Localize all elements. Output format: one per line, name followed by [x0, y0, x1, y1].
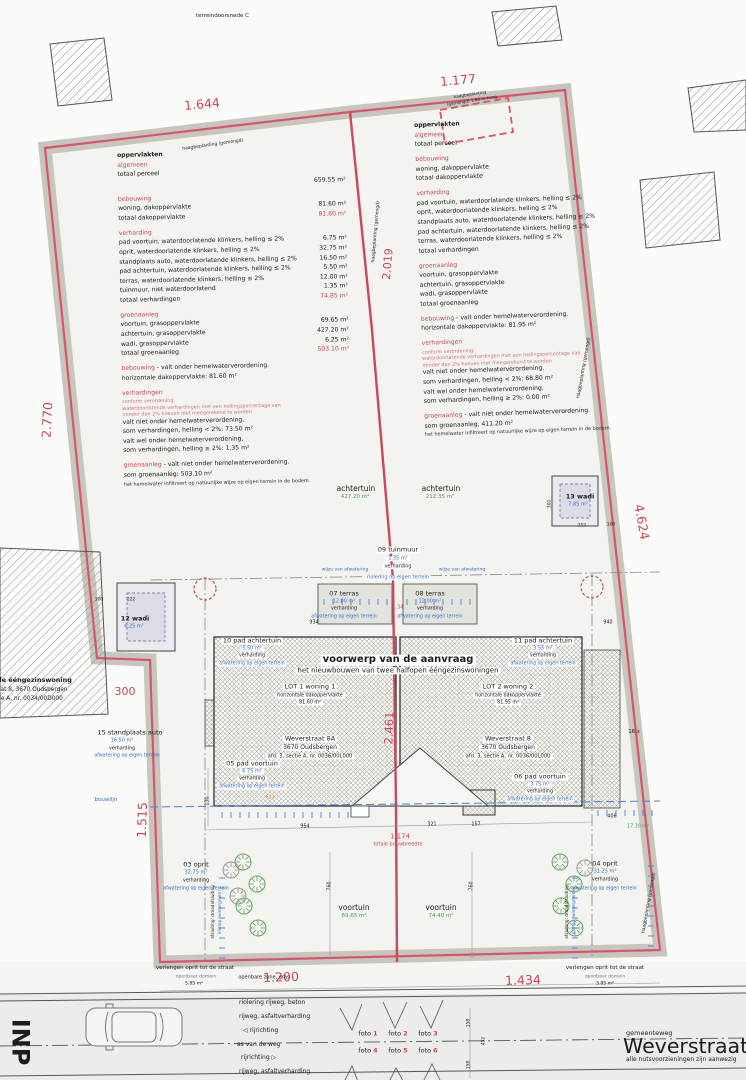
surface-note: verharding [237, 776, 267, 781]
road-axis-note: as van de weg [237, 1042, 280, 1048]
row-value: 81.60 m² [314, 201, 346, 208]
car-icon [86, 1004, 182, 1050]
feature-08-terras: 08 terras [415, 591, 445, 598]
feature-13-wadi: 13 wadi [566, 494, 595, 501]
label-text: afsluiting: draadafsluiting [564, 885, 569, 939]
label-text: totale bouwbreedte [373, 841, 422, 847]
dim-small: 934 [309, 620, 318, 625]
row-label: achtertuin, grasoppervlakte [121, 330, 206, 338]
lot2-title: LOT 2 woning 2 [481, 684, 535, 691]
dim-small: 612 [265, 795, 274, 800]
label-text: 32.75 m² [185, 869, 208, 875]
dim-300: 300 [115, 686, 136, 698]
feature-12-wadi: 12 wadi [121, 616, 150, 623]
row-label-text: groenaanleg [120, 311, 158, 319]
dim-small: 760 [469, 881, 474, 890]
row-label-text: algemeen [414, 131, 445, 139]
label-text: verlengen oprit tot de straat [156, 965, 234, 971]
address-lot2-cadastre: afd. 3, sectie A, nr. 0036/00L000 [464, 754, 553, 759]
dim-small: 321 [427, 822, 436, 827]
label-text: het nieuwbouwen van twee halfopen ééngez… [297, 666, 498, 674]
row-label-text: valt niet onder hemelwaterverordening, [123, 416, 245, 426]
surface-note: verharding [331, 606, 357, 611]
row-value: 81.60 m² [315, 211, 347, 218]
label-text: klimop (wintergroen) [571, 890, 576, 934]
label-text: voortuin [338, 903, 369, 912]
row-label: voortuin, grasoppervlakte [121, 321, 200, 329]
label-text: afwatering op eigen terrein [94, 753, 159, 758]
label-text: 157 [471, 822, 480, 827]
drainage-note: afwatering op eigen terrein [571, 886, 636, 891]
row-label-text: verhardingen [422, 339, 463, 347]
dim-1174: 1.174 [390, 833, 410, 840]
label-text: INP [7, 1019, 35, 1066]
label-text: voortuin [425, 903, 456, 912]
lot1-surface-table: oppervlaktenalgemeentotaal perceel659.55… [117, 148, 352, 489]
label-text: verlengen oprit tot de straat [566, 965, 644, 971]
dim-small: 158 [468, 1019, 473, 1028]
drive-direction-left: ◁ rijrichting [243, 1028, 278, 1034]
label-text: 300 [115, 685, 136, 698]
entrance-step [351, 806, 369, 817]
label-text: achtertuin [337, 484, 376, 493]
subject-subtitle: het nieuwbouwen van twee halfopen ééngez… [295, 667, 500, 674]
label-text: foto [388, 1030, 403, 1038]
row-label: terras, waterdoorlatende klinkers, helli… [120, 276, 264, 285]
feature-10-pad-achtertuin: 10 pad achtertuin [221, 638, 283, 645]
surface-note: verharding [382, 564, 413, 569]
area-value: 212.35 m² [426, 495, 455, 501]
row-label: totaal verhardingen [120, 297, 180, 304]
area-value: 12.00 m² [419, 599, 442, 604]
row-label-prefix: groenaanleg [424, 412, 462, 420]
row-label-text: totaal dakoppervlakte [416, 173, 483, 182]
driveway-extension-note: verlengen oprit tot de straat [156, 966, 234, 972]
row-label-text: tuinmuur, niet waterdoorlatend [120, 285, 216, 294]
neighbor-building [688, 80, 746, 132]
row-label: verhardingen [122, 390, 163, 397]
label-text: 5.85 m² [185, 981, 203, 986]
label-text: LOT 1 woning 1 [285, 683, 335, 691]
row-label: achtertuin, grasoppervlakte [420, 280, 505, 289]
label-text: openbaar domein [585, 974, 626, 979]
row-value: 6.75 m² [319, 236, 347, 243]
area-value: 1.35 m² [386, 556, 410, 561]
fence-label: afsluiting: draadafsluiting [211, 885, 215, 939]
row-label: horizontale dakoppervlakte: 81.95 m² [421, 322, 536, 332]
area-value: 3.55 m² [531, 646, 555, 651]
row-value: 74.85 m² [316, 293, 348, 300]
surface-note: verharding [592, 877, 618, 882]
label-text: verharding [417, 606, 443, 611]
neighbor-house-label: de ééngezinswoning [0, 677, 72, 684]
row-value: 6.25 m² [321, 337, 349, 344]
label-number: 6 [433, 1047, 438, 1055]
label-text: foto [418, 1030, 433, 1038]
label-text: 1.434 [505, 972, 541, 988]
row-value: 1.35 m² [320, 284, 348, 291]
area-value: 74.40 m² [428, 914, 453, 920]
label-text: 10 pad achtertuin [223, 637, 281, 645]
row-label: som verhardingen, helling ≥ 2%: 1.35 m² [123, 446, 249, 455]
row-label: som groenaanleg, 411.20 m² [424, 420, 513, 429]
row-label-text: verharding [416, 189, 449, 197]
row-label: totaal groenaanleg [121, 350, 179, 357]
dim-small: 100 [95, 599, 104, 604]
dim-1174-note: totale bouwbreedte [373, 842, 422, 847]
label-text: 100 [95, 598, 104, 603]
row-label-prefix: bebouwing [421, 315, 455, 323]
neighbor-building [640, 172, 720, 248]
label-text: openbaar domein [176, 974, 217, 979]
area-value: 5.85 m² [185, 982, 203, 987]
label-text: Weverstraat 8A [285, 735, 335, 743]
label-text: LOT 2 woning 2 [483, 683, 533, 691]
row-label-text: - valt niet onder hemelwaterverordening. [162, 459, 290, 469]
address-lot2: Weverstraat 8 [483, 736, 533, 743]
label-text: verharding [183, 878, 209, 883]
fence-label: klimop (wintergroen) [218, 890, 222, 934]
label-text: as van de weg [237, 1041, 280, 1048]
row-label: bebouwing [415, 156, 449, 163]
row-label-text: achtertuin, grasoppervlakte [121, 329, 206, 338]
feature-04-oprit: 04 oprit [592, 861, 617, 868]
row-label-text: woning, dakoppervlakte [415, 163, 488, 173]
dim-1177: 1.177 [440, 72, 477, 88]
row-label-text: totaal perceel [415, 140, 457, 148]
label-text: 16.50 m² [111, 737, 134, 743]
label-text: 5.50 m² [242, 645, 262, 651]
row-label-text: groenaanleg [419, 261, 457, 269]
label-text: afd. 3, sectie A, nr. 0036/00L000 [466, 753, 551, 759]
row-label: totaal perceel [415, 141, 457, 149]
label-text: aat 8, 3670 Oudsbergen [0, 687, 68, 693]
dim-small: 954 [300, 824, 309, 829]
label-text: rijrichting ▷ [241, 1054, 276, 1061]
dim-2019: 2.019 [381, 248, 395, 280]
address-lot2-city: 3670 Oudsbergen [479, 745, 537, 751]
address-lot1: Weverstraat 8A [283, 736, 337, 743]
label-text: voorwerp van de aanvraag [323, 654, 474, 665]
drainage-note: riolering op eigen terrein [365, 575, 431, 580]
row-label-text: totaal verhardingen [120, 296, 180, 304]
public-zone-note: openbare zone, gras [238, 975, 289, 980]
row-label: som groenaanleg: 503.10 m² [124, 471, 213, 479]
label-text: afsluiting: draadafsluiting [210, 885, 215, 939]
label-text: 760 [327, 881, 332, 890]
lot2-roof-label: horizontale dakoppervlakte [473, 693, 543, 698]
road-surface-note: rijweg, asfaltverharding [239, 1069, 310, 1075]
label-text: verharding [239, 653, 265, 658]
dim-small: 452 [483, 1037, 488, 1046]
label-text: 7.85 m² [568, 501, 588, 507]
row-label: pad achtertuin, waterdoorlatende klinker… [119, 266, 290, 276]
area-value: 69.65 m² [341, 914, 366, 920]
label-text: 16 s [628, 729, 640, 735]
label-text: horizontale dakoppervlakte [277, 693, 343, 698]
feature-07-terras: 07 terras [329, 591, 359, 598]
area-value: 32.75 m² [185, 870, 208, 875]
utilities-note: alle nutsvoorzieningen zijn aanwezig [626, 1057, 737, 1063]
plan-title-cut: INP [7, 1019, 32, 1066]
row-label-text: totaal groenaanleg [420, 299, 478, 308]
label-text: 222 [127, 598, 136, 603]
row-label-text: - valt onder hemelwaterverordening. [155, 362, 269, 371]
label-text: achtertuin [422, 484, 461, 493]
dim-small: 300 [549, 500, 554, 509]
street-name: Weverstraat [623, 1036, 746, 1058]
feature-06-pad-voortuin: 06 pad voortuin [512, 774, 568, 781]
row-label: valt wel onder hemelwaterverordening, [123, 436, 244, 445]
label-text: 2.019 [380, 248, 396, 281]
row-label-text: totaal verhardingen [418, 246, 478, 255]
label-text: afwatering op eigen terrein [311, 614, 376, 619]
area-value: 3.75 m² [528, 782, 552, 787]
drainage-note: afwatering op eigen terrein [217, 784, 286, 789]
label-text: 406 [607, 814, 616, 819]
label-text: 03 oprit [183, 861, 208, 869]
lot2-surface-table: oppervlaktenalgemeentotaal perceelbebouw… [414, 117, 595, 440]
address-lot1-cadastre: afd. 3, sectie A, nr. 0036/00L000 [266, 754, 355, 759]
area-value: 427.20 m² [341, 495, 370, 501]
label-text: verharding [109, 746, 135, 751]
row-label-text: totaal perceel [117, 170, 159, 178]
row-label: totaal dakoppervlakte [416, 174, 483, 182]
label-text: 69.65 m² [341, 913, 366, 919]
drainage-note: afwatering op eigen terrein [217, 661, 286, 666]
row-label: tuinmuur, niet waterdoorlatend [120, 286, 216, 294]
drainage-note: wijze van afwatering [439, 569, 486, 574]
label-text: 427.20 m² [341, 494, 370, 500]
dim-small: 406 [607, 814, 616, 819]
site-plan: oppervlaktenalgemeentotaal perceel659.55… [0, 0, 746, 1080]
label-text: afwatering op eigen terrein [219, 784, 284, 789]
lot1-roof-label: horizontale dakoppervlakte [275, 693, 345, 698]
row-label-text: oppervlakten [117, 151, 163, 159]
row-label-text: algemeen [117, 161, 147, 169]
row-label-text: verharding [119, 229, 152, 237]
row-label: totaal verhardingen [418, 247, 478, 255]
label-text: tie A, nr. 0034/00D000 [0, 696, 63, 702]
row-label-text: totaal dakoppervlakte [118, 213, 185, 221]
label-text: 12 wadi [121, 615, 150, 623]
foto-5: foto 5 [388, 1048, 407, 1055]
dim-small: 130 [205, 796, 210, 805]
label-text: terreindoorsnede C [196, 13, 249, 19]
row-label: groenaanleg [419, 262, 457, 269]
label-number: 2 [403, 1030, 408, 1038]
row-label: oppervlakten [414, 121, 460, 129]
label-text: afd. 3, sectie A, nr. 0036/00L000 [268, 753, 353, 759]
row-label: totaal perceel [117, 171, 159, 178]
label-text: 6.25 m² [124, 623, 144, 629]
area-achtertuin-1: achtertuin [337, 485, 376, 493]
feature-09-tuinmuur: 09 tuinmuur [376, 547, 420, 554]
row-value: 503.10 m² [313, 346, 349, 353]
label-text: horizontale dakoppervlakte [475, 693, 541, 698]
label-text: foto [418, 1047, 433, 1055]
label-text: afwatering op eigen terrein [397, 614, 462, 619]
drainage-note: afwatering op eigen terrein [311, 614, 376, 619]
dim-small: 157 [471, 822, 480, 827]
section-note: terreindoorsnede C [196, 14, 249, 20]
label-text: 2.770 [39, 402, 56, 439]
carport-16 [584, 650, 620, 808]
label-text: afwatering op eigen terrein [510, 661, 575, 666]
row-label: wadi, grasoppervlakte [420, 290, 488, 298]
lot1-title: LOT 1 woning 1 [283, 684, 337, 691]
label-text: Weverstraat 8 [485, 735, 531, 743]
row-value: 16.50 m² [315, 255, 347, 262]
area-value: 16.50 m² [111, 738, 134, 743]
row-label: som verhardingen, helling < 2%: 73.50 m² [123, 426, 253, 435]
surface-note: verharding [109, 746, 135, 751]
label-text: alle nutsvoorzieningen zijn aanwezig [626, 1056, 737, 1063]
dim-small: 252 [578, 525, 587, 530]
label-text: 158 [467, 1019, 472, 1028]
drainage-note: afwatering op eigen terrein [505, 797, 574, 802]
drive-direction-right: rijrichting ▷ [241, 1055, 276, 1061]
row-label-text: totaal groenaanleg [121, 349, 179, 357]
row-label: oprit, waterdoorlatende klinkers, hellin… [119, 247, 260, 256]
label-text: 81.95 m² [497, 700, 519, 705]
label-text: 452 [482, 1037, 487, 1046]
row-label: oppervlakten [117, 152, 163, 159]
area-value: 17.30 m² [627, 824, 649, 829]
label-text: 12.00 m² [419, 598, 442, 604]
label-text: 74.40 m² [428, 913, 453, 919]
row-label-text: voortuin, grasoppervlakte [419, 269, 498, 279]
row-label: woning, dakoppervlakte [118, 205, 191, 213]
label-text: 31.25 m² [594, 868, 617, 874]
label-text: 954 [300, 824, 309, 829]
dim-2770: 2.770 [40, 402, 55, 438]
feature-16-partial: 16 s [628, 730, 640, 736]
foto-3: foto 3 [418, 1031, 437, 1038]
row-label: verharding [119, 230, 152, 237]
label-text: 934 [309, 620, 318, 625]
label-text: 252 [578, 524, 587, 529]
address-lot1-city: 3670 Oudsbergen [281, 745, 339, 751]
row-label: totaal groenaanleg [420, 300, 478, 308]
label-text: wijze van afwatering [322, 568, 369, 573]
label-text: afwatering op eigen terrein [507, 797, 572, 802]
label-text: 300 [548, 500, 553, 509]
label-text: 212.35 m² [426, 494, 455, 500]
row-label-prefix: bebouwing [121, 364, 155, 372]
plan-drawing [0, 0, 746, 1080]
label-text: 1.515 [134, 802, 150, 838]
area-voortuin-2: voortuin [425, 904, 456, 912]
label-text: 15 standplaats auto [97, 729, 162, 737]
row-label: algemeen [117, 162, 147, 169]
public-domain-note: openbaar domein [585, 975, 626, 980]
label-text: 3.75 m² [530, 781, 550, 787]
row-label: groenaanleg - valt niet onder hemelwater… [123, 460, 289, 470]
dim-2461: 2.461 [382, 711, 395, 744]
row-label-text: valt wel onder hemelwaterverordening, [123, 435, 244, 445]
row-value: 427.20 m² [313, 327, 349, 334]
label-text: 158 [467, 1061, 472, 1070]
area-value: 5.50 m² [240, 646, 264, 651]
row-value: 69.65 m² [317, 318, 349, 325]
area-value: 31.25 m² [594, 869, 617, 874]
dim-1515: 1.515 [135, 802, 149, 838]
fence-label: klimop (wintergroen) [572, 890, 576, 934]
feature-03-oprit: 03 oprit [183, 862, 208, 869]
row-label: bebouwing [118, 196, 152, 203]
surface-note: verharding [237, 653, 267, 658]
row-value: 5.50 m² [319, 264, 347, 271]
drainage-note: afwatering op eigen terrein [508, 661, 577, 666]
label-text: 05 pad voortuin [226, 760, 278, 768]
row-label-text: wadi, grasoppervlakte [121, 339, 189, 347]
neighbor-building [492, 6, 562, 46]
dim-small: 940 [603, 620, 612, 625]
row-label-text: oppervlakten [414, 120, 460, 129]
label-text: 321 [427, 822, 436, 827]
label-text: Weverstraat [623, 1034, 746, 1058]
row-label-text: som groenaanleg: 503.10 m² [124, 470, 213, 479]
label-number: 4 [373, 1047, 378, 1055]
label-text: 3.55 m² [533, 645, 553, 651]
label-text: de ééngezinswoning [0, 676, 72, 684]
drainage-note: afwatering op eigen terrein [397, 614, 462, 619]
label-text: wijze van afwatering [439, 568, 486, 573]
row-label: groenaanleg [120, 312, 158, 319]
label-text: verharding [592, 877, 618, 882]
label-text: riolering op eigen terrein [367, 574, 429, 580]
road-sewer-note: riolering rijweg, beton [239, 1000, 305, 1006]
dim-1644: 1.644 [184, 96, 221, 112]
driveway-extension-note: verlengen oprit tot de straat [566, 966, 644, 972]
area-value: 12.00 m² [333, 599, 356, 604]
foto-1: foto 1 [358, 1031, 377, 1038]
label-text: 07 terras [329, 590, 359, 598]
area-achtertuin-2: achtertuin [422, 485, 461, 493]
label-text: verharding [239, 776, 265, 781]
surface-note: verharding [417, 606, 443, 611]
foto-6: foto 6 [418, 1048, 437, 1055]
subject-title: voorwerp van de aanvraag [321, 655, 476, 666]
row-value: 12.00 m² [316, 274, 348, 281]
road-surface-note: rijweg, asfaltverharding [239, 1014, 310, 1020]
label-text: 1.35 m² [388, 555, 408, 561]
label-text: bouwlijn [95, 797, 118, 803]
row-label: voortuin, grasoppervlakte [419, 270, 498, 279]
feature-11-pad-achtertuin: 11 pad achtertuin [512, 638, 574, 645]
surface-note: verharding [183, 878, 209, 883]
area-value: 7.85 m² [568, 502, 588, 507]
foto-4: foto 4 [358, 1048, 377, 1055]
public-domain-note: openbaar domein [176, 975, 217, 980]
dim-1434: 1.434 [505, 973, 541, 987]
label-text: 12.00 m² [333, 598, 356, 604]
row-label-text: voortuin, grasoppervlakte [121, 320, 200, 329]
row-value: 659.55 m² [310, 177, 346, 184]
label-text: ◁ rijrichting [243, 1027, 278, 1034]
label-text: 1.177 [440, 71, 477, 89]
surface-note: verharding [528, 653, 558, 658]
label-text: 08 terras [415, 590, 445, 598]
surface-note: verharding [525, 789, 555, 794]
area-value: 6.75 m² [240, 769, 264, 774]
label-text: 09 tuinmuur [378, 546, 418, 554]
label-text: verharding [331, 606, 357, 611]
row-label-text: wadi, grasoppervlakte [420, 289, 488, 298]
label-text: 940 [603, 620, 612, 625]
dim-small: 158 [468, 1061, 473, 1070]
